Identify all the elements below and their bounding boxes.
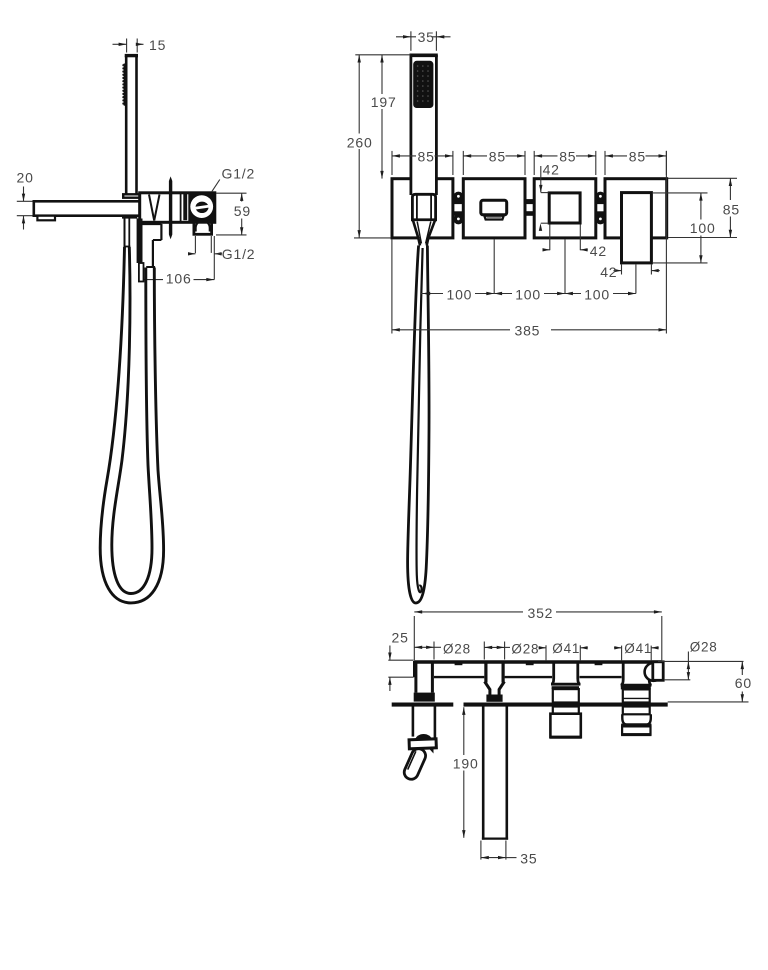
- svg-text:100: 100: [447, 286, 473, 302]
- svg-text:352: 352: [528, 605, 554, 621]
- svg-text:100: 100: [584, 286, 610, 302]
- svg-text:385: 385: [515, 323, 541, 339]
- svg-text:G1/2: G1/2: [222, 246, 256, 262]
- svg-text:100: 100: [690, 220, 716, 236]
- svg-text:25: 25: [392, 630, 409, 646]
- svg-text:85: 85: [629, 148, 646, 164]
- svg-text:Ø28: Ø28: [443, 641, 471, 656]
- svg-text:42: 42: [590, 243, 607, 259]
- svg-text:Ø41: Ø41: [552, 641, 580, 656]
- svg-text:35: 35: [418, 29, 435, 45]
- svg-text:G1/2: G1/2: [222, 165, 256, 181]
- svg-text:106: 106: [166, 271, 192, 287]
- svg-text:Ø41: Ø41: [624, 641, 652, 656]
- svg-text:59: 59: [234, 203, 251, 219]
- svg-text:15: 15: [149, 37, 166, 53]
- svg-text:35: 35: [520, 851, 537, 867]
- svg-text:60: 60: [735, 675, 752, 691]
- svg-text:85: 85: [723, 201, 740, 217]
- svg-text:85: 85: [489, 148, 506, 164]
- svg-text:85: 85: [559, 148, 576, 164]
- svg-text:100: 100: [515, 286, 541, 302]
- svg-text:42: 42: [600, 264, 617, 280]
- svg-text:Ø28: Ø28: [690, 640, 718, 655]
- svg-text:85: 85: [418, 148, 435, 164]
- svg-text:42: 42: [543, 162, 560, 178]
- svg-text:190: 190: [453, 755, 479, 771]
- svg-text:20: 20: [17, 170, 34, 186]
- svg-text:260: 260: [347, 135, 373, 151]
- svg-text:197: 197: [371, 94, 397, 110]
- svg-text:Ø28: Ø28: [511, 641, 539, 656]
